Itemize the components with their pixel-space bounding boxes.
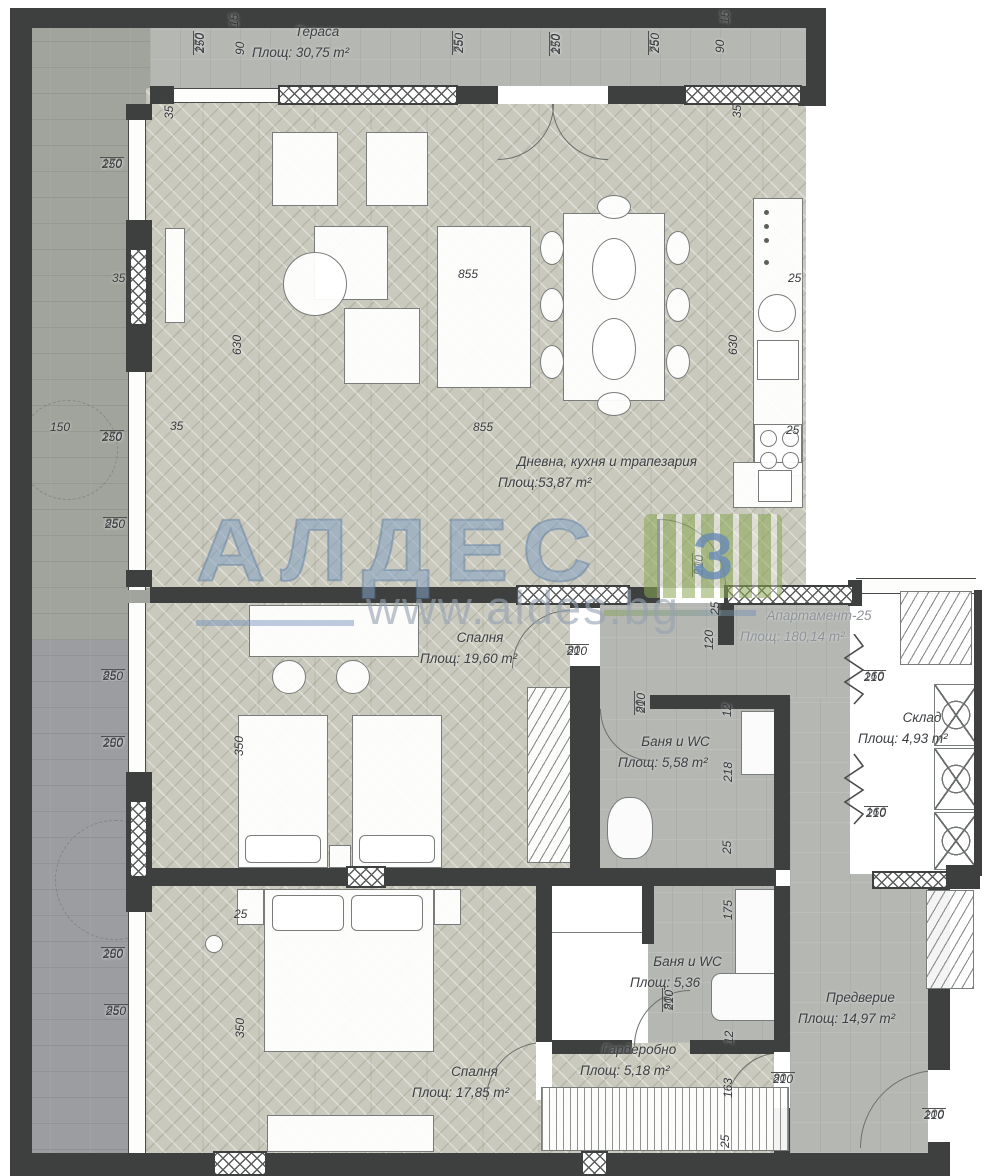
door-opening bbox=[498, 86, 608, 104]
wall-segment bbox=[10, 1153, 950, 1176]
socket-dot-icon bbox=[764, 210, 769, 215]
wall-segment bbox=[150, 86, 174, 104]
hatched-wall-segment bbox=[726, 585, 854, 605]
vanity-icon bbox=[551, 885, 644, 933]
door-opening bbox=[928, 1070, 950, 1142]
hatched-wall-segment bbox=[346, 866, 386, 888]
room-name: Баня и WC bbox=[618, 732, 733, 753]
wall-segment bbox=[798, 86, 826, 106]
wall-segment bbox=[572, 868, 776, 886]
dining-chair-icon bbox=[666, 345, 690, 379]
nightstand-icon bbox=[329, 845, 351, 868]
wall-segment bbox=[774, 695, 790, 870]
wardrobe-icon bbox=[926, 890, 974, 989]
kitchen-cabinet-icon bbox=[758, 470, 792, 502]
tv-cabinet-icon bbox=[267, 1115, 434, 1152]
wall-segment bbox=[642, 886, 654, 944]
socket-dot-icon bbox=[764, 224, 769, 229]
platter-icon bbox=[592, 238, 636, 300]
dining-chair-icon bbox=[666, 288, 690, 322]
dining-chair-icon bbox=[666, 231, 690, 265]
room-area: Площ:53,87 m² bbox=[498, 473, 591, 494]
wall-segment bbox=[806, 26, 826, 94]
socket-dot-icon bbox=[764, 260, 769, 265]
room-label-sklad: СкладПлощ: 4,93 m² bbox=[858, 708, 986, 729]
kitchen-sink-round-icon bbox=[758, 294, 796, 332]
hatched-wall-segment bbox=[129, 248, 148, 326]
hatched-wall-segment bbox=[129, 800, 148, 878]
chair-icon bbox=[272, 660, 306, 694]
shelf-icon bbox=[900, 591, 972, 665]
door-leaf bbox=[657, 519, 660, 589]
room-label-apartment: Апартамент-25Площ: 180,14 m² bbox=[740, 606, 898, 627]
wardrobe-icon bbox=[527, 687, 572, 863]
pillow-icon bbox=[272, 895, 344, 931]
washbasin-icon bbox=[741, 711, 777, 775]
wall-segment bbox=[150, 587, 520, 603]
storage-box-icon bbox=[934, 812, 978, 870]
room-label-bath2: Баня и WCПлощ: 5,36 bbox=[630, 952, 745, 973]
burner-icon bbox=[760, 430, 777, 447]
hatched-wall-segment bbox=[872, 871, 948, 889]
pillow-icon bbox=[351, 895, 423, 931]
tree-outline bbox=[18, 400, 118, 500]
room-name: Предверие bbox=[798, 988, 923, 1009]
wall-segment bbox=[928, 988, 950, 1072]
room-name: Дневна, кухня и трапезария bbox=[498, 452, 716, 473]
hatched-wall-segment bbox=[213, 1151, 267, 1176]
kitchen-sink-icon bbox=[757, 340, 799, 380]
wall-segment bbox=[10, 8, 826, 28]
wall-segment bbox=[650, 695, 776, 709]
pillow-icon bbox=[359, 835, 435, 863]
dining-chair-icon bbox=[540, 231, 564, 265]
wall-segment bbox=[974, 590, 982, 876]
floor-plan-canvas: АЛДЕС З www.aldes.bg ТерасаПлощ: 30,75 m… bbox=[0, 0, 1000, 1176]
room-name: Спалня bbox=[420, 628, 540, 649]
armchair-icon bbox=[366, 132, 428, 206]
hatched-wall-segment bbox=[278, 85, 458, 105]
desk-icon bbox=[249, 605, 419, 657]
room-area: Площ: 180,14 m² bbox=[740, 627, 845, 648]
lamp-icon bbox=[205, 935, 223, 953]
dining-chair-icon bbox=[540, 345, 564, 379]
hatched-wall-segment bbox=[581, 1151, 608, 1176]
burner-icon bbox=[782, 452, 799, 469]
dining-chair-icon bbox=[540, 288, 564, 322]
watermark-underline bbox=[604, 610, 756, 616]
room-name: Спалня bbox=[412, 1062, 537, 1083]
socket-dot-icon bbox=[764, 238, 769, 243]
room-label-bedroom1: СпалняПлощ: 19,60 m² bbox=[420, 628, 540, 649]
round-table-icon bbox=[283, 252, 347, 316]
room-label-bedroom2: СпалняПлощ: 17,85 m² bbox=[412, 1062, 537, 1083]
dining-chair-icon bbox=[597, 195, 631, 219]
side-table-icon bbox=[344, 308, 420, 384]
toilet-icon bbox=[607, 797, 653, 859]
closet-rail-icon bbox=[541, 1087, 789, 1151]
sofa-icon bbox=[437, 226, 531, 388]
platter-icon bbox=[592, 318, 636, 380]
wall-segment bbox=[126, 104, 152, 120]
wall-segment bbox=[126, 570, 152, 587]
wall-segment bbox=[606, 86, 686, 104]
wall-segment bbox=[774, 886, 790, 1052]
pillow-icon bbox=[245, 835, 321, 863]
room-area: Площ: 5,18 m² bbox=[580, 1061, 670, 1082]
storage-box-icon bbox=[934, 748, 978, 810]
nightstand-icon bbox=[434, 889, 461, 925]
dining-chair-icon bbox=[597, 392, 631, 416]
room-area: Площ: 17,85 m² bbox=[412, 1083, 509, 1104]
wall-segment bbox=[626, 587, 660, 603]
chair-icon bbox=[336, 660, 370, 694]
wall-segment bbox=[454, 86, 500, 104]
armchair-icon bbox=[272, 132, 338, 206]
hatched-wall-segment bbox=[516, 585, 630, 605]
radiator-icon bbox=[165, 228, 185, 323]
exterior-area bbox=[950, 1038, 1000, 1176]
burner-icon bbox=[760, 452, 777, 469]
room-area: Площ: 5,58 m² bbox=[618, 753, 708, 774]
wall-segment bbox=[10, 8, 32, 1176]
room-name: Баня и WC bbox=[630, 952, 745, 973]
room-label-terrace: ТерасаПлощ: 30,75 m² bbox=[252, 22, 382, 43]
room-label-living: Дневна, кухня и трапезарияПлощ:53,87 m² bbox=[498, 452, 716, 473]
room-name: Склад bbox=[858, 708, 986, 729]
room-area: Площ: 19,60 m² bbox=[420, 649, 517, 670]
room-name: Апартамент-25 bbox=[740, 606, 898, 627]
watermark-underline bbox=[196, 620, 354, 626]
room-label-predverie: ПредвериеПлощ: 14,97 m² bbox=[798, 988, 923, 1009]
room-area: Площ: 14,97 m² bbox=[798, 1009, 895, 1030]
floor-terrace bbox=[150, 28, 806, 90]
room-name: Гардеробно bbox=[580, 1040, 698, 1061]
room-area: Площ: 4,93 m² bbox=[858, 729, 948, 750]
room-name: Тераса bbox=[252, 22, 382, 43]
room-label-bath1: Баня и WCПлощ: 5,58 m² bbox=[618, 732, 733, 753]
room-label-garderob: ГардеробноПлощ: 5,18 m² bbox=[580, 1040, 698, 1061]
room-area: Площ: 30,75 m² bbox=[252, 43, 349, 64]
